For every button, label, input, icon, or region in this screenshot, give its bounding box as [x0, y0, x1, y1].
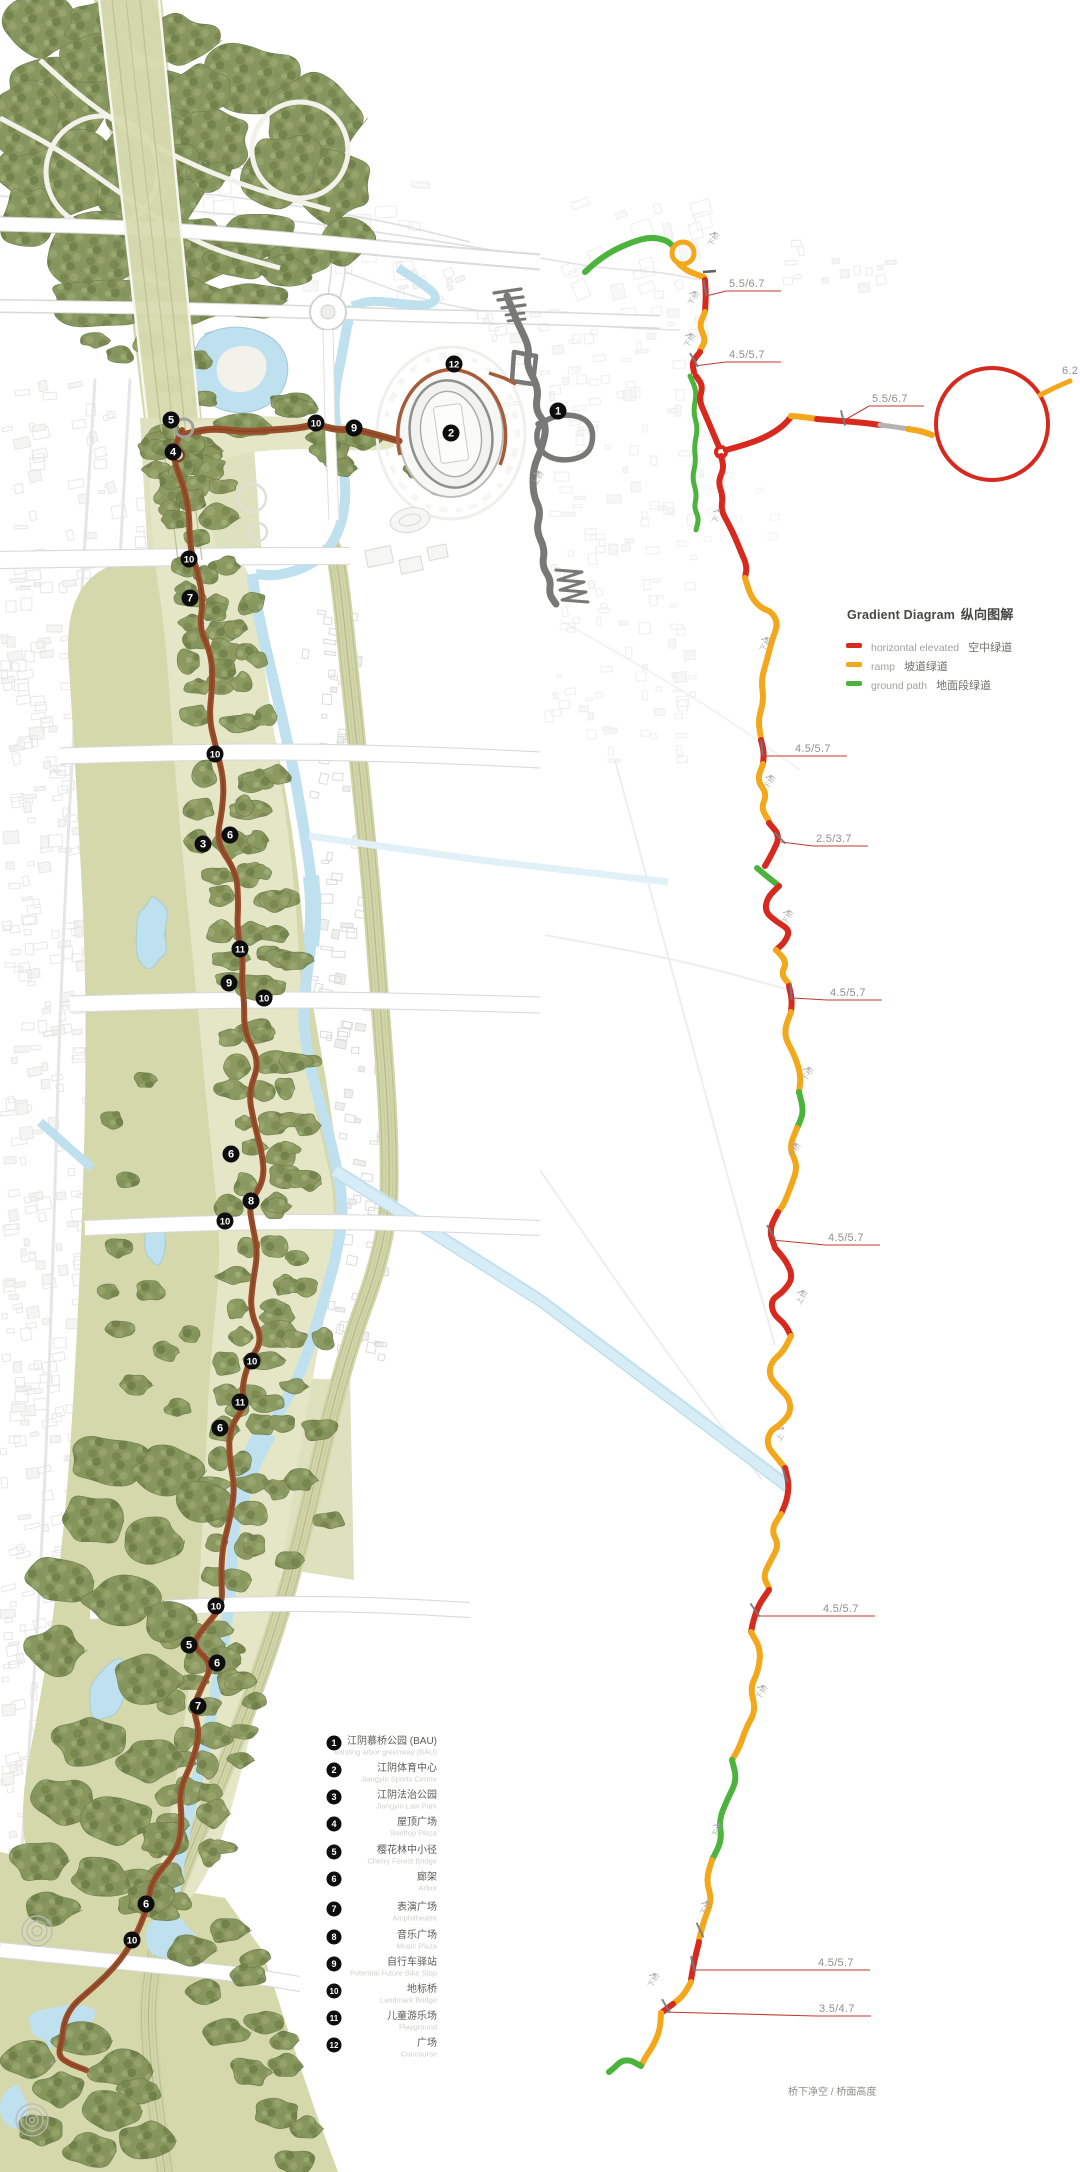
svg-text:10: 10 [220, 1217, 231, 1228]
svg-text:4.5/5.7: 4.5/5.7 [830, 987, 866, 999]
svg-text:江阴法治公园: 江阴法治公园 [377, 1788, 437, 1801]
svg-text:10: 10 [247, 1357, 258, 1368]
svg-text:自行车驿站: 自行车驿站 [387, 1955, 437, 1968]
svg-text:4.5/5.7: 4.5/5.7 [818, 1957, 854, 1969]
svg-text:江阴体育中心: 江阴体育中心 [377, 1761, 437, 1774]
svg-text:Jiangyin Sports Centre: Jiangyin Sports Centre [361, 1775, 437, 1784]
svg-text:11: 11 [235, 945, 246, 956]
svg-text:existing arbor greenway (BAU): existing arbor greenway (BAU) [335, 1748, 438, 1757]
svg-text:11: 11 [235, 1398, 246, 1409]
svg-text:5: 5 [331, 1847, 336, 1857]
svg-text:5.5/6.7: 5.5/6.7 [729, 278, 765, 290]
svg-text:Potential Future Bike Stop: Potential Future Bike Stop [350, 1969, 437, 1978]
svg-text:江阴慕桥公园 (BAU): 江阴慕桥公园 (BAU) [347, 1734, 437, 1747]
svg-text:地标桥: 地标桥 [407, 1982, 437, 1995]
svg-text:6: 6 [227, 830, 233, 842]
svg-text:Playground: Playground [399, 2023, 437, 2032]
svg-text:廊架: 廊架 [417, 1870, 437, 1883]
svg-text:10: 10 [330, 1987, 339, 1996]
svg-text:10: 10 [311, 419, 322, 430]
svg-text:12: 12 [449, 360, 460, 371]
svg-text:6: 6 [214, 1658, 220, 1670]
svg-text:6: 6 [217, 1423, 223, 1435]
svg-text:7: 7 [187, 593, 193, 605]
svg-text:Concourse: Concourse [401, 2050, 437, 2059]
svg-text:1: 1 [331, 1738, 336, 1748]
svg-text:4: 4 [170, 447, 177, 459]
svg-text:Jiangyin Law Park: Jiangyin Law Park [376, 1802, 437, 1811]
svg-text:音乐广场: 音乐广场 [397, 1928, 437, 1941]
svg-text:8: 8 [331, 1932, 336, 1942]
svg-text:10: 10 [211, 1602, 222, 1613]
svg-text:表演广场: 表演广场 [397, 1900, 437, 1913]
svg-text:10: 10 [127, 1936, 138, 1947]
svg-text:Rooftop Plaza: Rooftop Plaza [390, 1829, 438, 1838]
svg-text:6: 6 [228, 1149, 234, 1161]
svg-text:9: 9 [351, 423, 357, 435]
svg-text:5: 5 [186, 1640, 192, 1652]
svg-text:5: 5 [168, 415, 174, 427]
svg-text:6.2: 6.2 [1062, 365, 1078, 377]
svg-text:6: 6 [143, 1899, 149, 1911]
svg-text:4.5/5.7: 4.5/5.7 [823, 1603, 859, 1615]
svg-text:2.5/3.7: 2.5/3.7 [816, 833, 852, 845]
svg-text:Gradient Diagram 纵向图解: Gradient Diagram 纵向图解 [847, 607, 1014, 622]
svg-text:3.5/4.7: 3.5/4.7 [819, 2003, 855, 2015]
svg-text:9: 9 [331, 1959, 336, 1969]
svg-text:12: 12 [330, 2041, 339, 2050]
svg-text:屋顶广场: 屋顶广场 [397, 1815, 437, 1828]
svg-text:樱花林中小径: 樱花林中小径 [377, 1843, 437, 1856]
svg-text:广场: 广场 [417, 2036, 437, 2049]
svg-text:4.5/5.7: 4.5/5.7 [729, 349, 765, 361]
svg-text:7: 7 [331, 1904, 336, 1914]
svg-text:6: 6 [331, 1874, 336, 1884]
svg-text:1: 1 [555, 406, 561, 418]
svg-text:4.5/5.7: 4.5/5.7 [795, 743, 831, 755]
svg-text:2: 2 [331, 1765, 336, 1775]
svg-text:儿童游乐场: 儿童游乐场 [387, 2009, 437, 2022]
svg-text:4.5/5.7: 4.5/5.7 [828, 1232, 864, 1244]
svg-text:9: 9 [226, 978, 232, 990]
svg-text:4: 4 [331, 1819, 336, 1829]
svg-text:horizontal elevated空中绿道: horizontal elevated空中绿道 [871, 640, 1012, 654]
svg-text:ramp坡道绿道: ramp坡道绿道 [871, 659, 948, 673]
svg-text:桥下净空 / 桥面高度: 桥下净空 / 桥面高度 [788, 2085, 876, 2098]
svg-text:Arbor: Arbor [419, 1884, 438, 1893]
svg-text:Landmark Bridge: Landmark Bridge [380, 1996, 437, 2005]
svg-text:Cherry Forest Bridge: Cherry Forest Bridge [367, 1857, 437, 1866]
svg-text:3: 3 [331, 1792, 336, 1802]
svg-text:Music Plaza: Music Plaza [397, 1942, 438, 1951]
svg-text:8: 8 [248, 1196, 254, 1208]
svg-text:Amphitheatre: Amphitheatre [392, 1914, 437, 1923]
svg-text:10: 10 [210, 750, 221, 761]
svg-text:3: 3 [200, 839, 206, 851]
svg-text:7: 7 [195, 1701, 201, 1713]
svg-text:2: 2 [448, 428, 454, 440]
svg-text:11: 11 [330, 2014, 339, 2023]
svg-text:10: 10 [184, 555, 195, 566]
svg-text:10: 10 [259, 994, 270, 1005]
svg-text:5.5/6.7: 5.5/6.7 [872, 393, 908, 405]
